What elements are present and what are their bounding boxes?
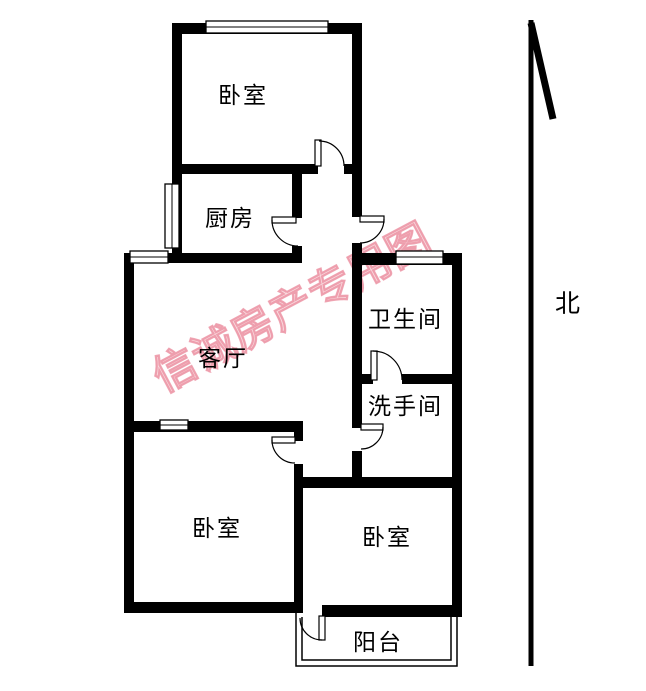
floorplan-canvas: 信诚房产专用图	[0, 0, 646, 691]
door-bedroom-southwest	[272, 437, 295, 463]
window-kitchen-west	[165, 184, 179, 248]
door-balcony	[300, 616, 325, 640]
wall-bath-wash-divider-west	[352, 374, 373, 384]
door-bedroom-north	[315, 140, 344, 166]
door-bathroom	[371, 351, 402, 380]
label-washroom: 洗手间	[368, 394, 443, 419]
north-arrow-head	[531, 23, 553, 119]
floorplan-svg: 信诚房产专用图	[0, 0, 646, 691]
door-washroom	[361, 424, 383, 449]
north-label: 北	[555, 291, 580, 318]
wall-east-main	[452, 253, 462, 617]
door-kitchen	[272, 217, 298, 246]
wall-west-main	[124, 253, 134, 613]
wall-south-east	[322, 605, 462, 617]
wall-livingroom-bedroom-divider	[124, 421, 303, 432]
label-living-room: 客厅	[198, 346, 248, 371]
wall-bath-wash-divider-east	[402, 374, 462, 384]
label-bedroom-southeast: 卧室	[362, 525, 412, 550]
window-bathroom-north	[396, 251, 443, 264]
label-bathroom: 卫生间	[368, 307, 443, 332]
window-bedroom-divider	[160, 420, 188, 430]
wall-east-upper	[352, 23, 362, 217]
label-bedroom-north: 卧室	[218, 83, 268, 108]
label-kitchen: 厨房	[205, 206, 255, 231]
window-bedroom-north	[206, 21, 328, 33]
wall-bedroom-se-north	[296, 477, 462, 488]
wall-corridor-east-mid	[352, 243, 362, 428]
wall-kitchen-east-upper	[292, 164, 302, 218]
north-arrow: 北	[531, 20, 580, 666]
window-livingroom-top	[130, 251, 168, 263]
label-balcony: 阳台	[353, 630, 403, 655]
label-bedroom-southwest: 卧室	[192, 516, 242, 541]
wall-bedroom-north-south-right	[344, 164, 362, 174]
wall-inter-bedroom-lower	[294, 464, 303, 613]
wall-south-west	[124, 602, 303, 613]
doors	[272, 140, 402, 640]
